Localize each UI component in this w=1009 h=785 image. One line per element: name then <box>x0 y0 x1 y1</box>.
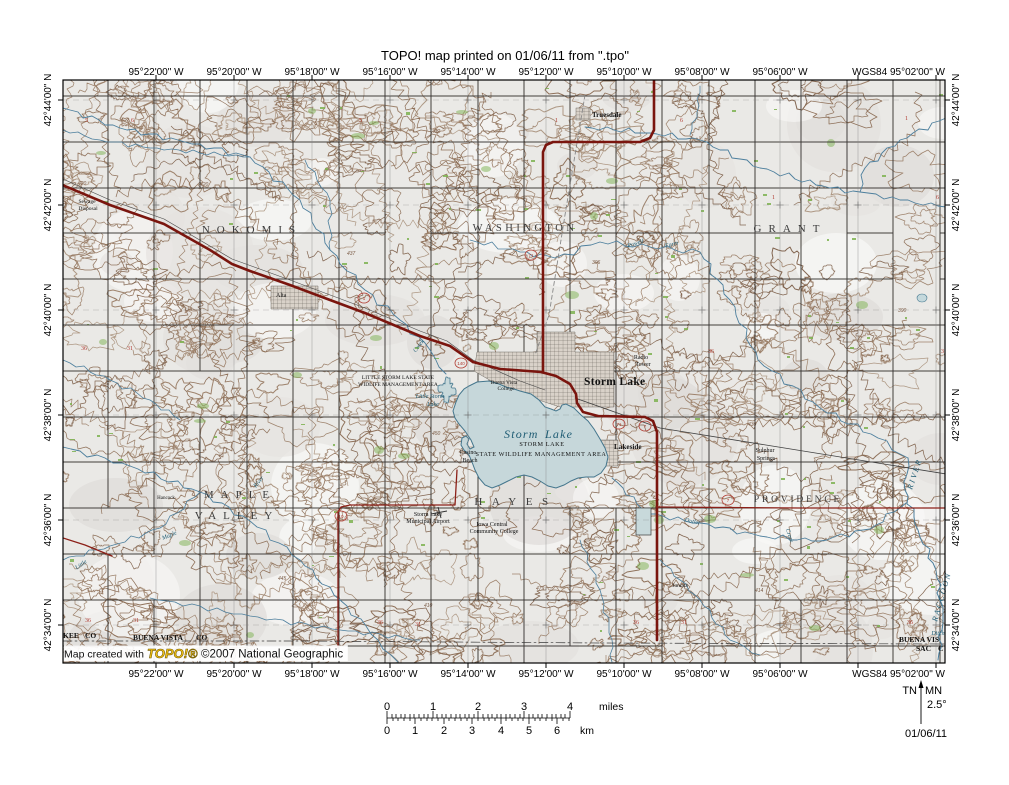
svg-text:1: 1 <box>905 116 908 122</box>
svg-text:Truesdale: Truesdale <box>592 111 621 119</box>
svg-text:Iowa Central: Iowa Central <box>476 522 507 528</box>
svg-text:42°44'00" N: 42°44'00" N <box>951 74 962 127</box>
svg-text:36: 36 <box>377 620 383 626</box>
svg-text:36: 36 <box>85 618 91 624</box>
svg-text:6: 6 <box>680 118 683 124</box>
svg-text:420: 420 <box>200 182 209 188</box>
svg-text:km: km <box>580 725 594 737</box>
svg-text:36: 36 <box>81 346 87 352</box>
svg-text:HAYES: HAYES <box>474 496 557 508</box>
svg-text:Lake: Lake <box>544 427 573 441</box>
svg-text:95°20'00" W: 95°20'00" W <box>206 669 262 680</box>
svg-text:Little Storm: Little Storm <box>415 394 445 400</box>
svg-text:445: 445 <box>278 576 287 582</box>
svg-text:450: 450 <box>226 314 235 320</box>
svg-text:Radio: Radio <box>634 355 648 361</box>
svg-text:95°12'00" W: 95°12'00" W <box>518 669 574 680</box>
svg-text:42°40'00" N: 42°40'00" N <box>951 284 962 337</box>
svg-text:0: 0 <box>384 725 390 737</box>
svg-text:95°14'00" W: 95°14'00" W <box>440 67 496 78</box>
svg-text:95°08'00" W: 95°08'00" W <box>674 67 730 78</box>
svg-text:31: 31 <box>681 620 687 626</box>
svg-text:31: 31 <box>127 346 133 352</box>
svg-text:390: 390 <box>898 308 907 314</box>
svg-text:95°06'00" W: 95°06'00" W <box>752 67 808 78</box>
svg-text:42°42'00" N: 42°42'00" N <box>43 179 54 232</box>
svg-text:479: 479 <box>536 586 545 592</box>
svg-text:42°36'00" N: 42°36'00" N <box>43 494 54 547</box>
svg-text:5: 5 <box>359 118 362 124</box>
svg-text:42°36'00" N: 42°36'00" N <box>951 494 962 547</box>
svg-text:NOKOMIS: NOKOMIS <box>202 224 302 236</box>
svg-text:Ditch: Ditch <box>930 631 944 637</box>
svg-text:STORM LAKE: STORM LAKE <box>519 441 564 448</box>
svg-text:1: 1 <box>772 195 775 201</box>
svg-text:10: 10 <box>338 514 344 519</box>
svg-text:CO: CO <box>196 633 207 642</box>
svg-text:6: 6 <box>936 195 939 201</box>
svg-text:95°16'00" W: 95°16'00" W <box>362 67 418 78</box>
svg-text:430: 430 <box>748 422 757 428</box>
svg-text:Juniata: Juniata <box>672 583 688 589</box>
svg-text:42°42'00" N: 42°42'00" N <box>951 179 962 232</box>
svg-text:450: 450 <box>432 431 441 437</box>
svg-text:WGS84 95°02'00" W: WGS84 95°02'00" W <box>852 669 945 680</box>
svg-text:CO: CO <box>85 631 96 640</box>
svg-text:MAPLE: MAPLE <box>204 489 276 501</box>
svg-text:410: 410 <box>424 603 433 609</box>
svg-text:Springs: Springs <box>757 456 776 462</box>
svg-text:C: C <box>938 644 943 653</box>
svg-text:TOPO!®: TOPO!® <box>147 646 198 661</box>
svg-text:Beach: Beach <box>463 458 478 464</box>
svg-text:140: 140 <box>457 361 465 366</box>
svg-text:2: 2 <box>441 725 447 737</box>
svg-text:95°16'00" W: 95°16'00" W <box>362 669 418 680</box>
svg-text:95°12'00" W: 95°12'00" W <box>518 67 574 78</box>
svg-text:42°34'00" N: 42°34'00" N <box>951 599 962 652</box>
svg-text:437: 437 <box>347 251 356 257</box>
svg-text:31: 31 <box>133 618 139 624</box>
svg-text:95°18'00" W: 95°18'00" W <box>284 669 340 680</box>
svg-text:71: 71 <box>528 253 534 258</box>
svg-text:WGS84 95°02'00" W: WGS84 95°02'00" W <box>852 67 945 78</box>
svg-text:miles: miles <box>599 701 624 713</box>
svg-text:Disposal: Disposal <box>78 206 98 212</box>
svg-text:Tower: Tower <box>635 362 650 368</box>
svg-text:Sulphur: Sulphur <box>755 448 774 454</box>
svg-text:95°08'00" W: 95°08'00" W <box>674 669 730 680</box>
svg-text:WASHINGTON: WASHINGTON <box>473 223 578 234</box>
svg-text:Hancock: Hancock <box>157 496 175 501</box>
svg-text:1: 1 <box>555 118 558 124</box>
svg-text:Alta: Alta <box>276 293 287 299</box>
svg-text:36: 36 <box>633 620 639 626</box>
svg-text:95°22'00" W: 95°22'00" W <box>128 67 184 78</box>
svg-text:420: 420 <box>78 181 87 187</box>
svg-text:BUENA VISTA: BUENA VISTA <box>133 633 184 642</box>
svg-text:42°40'00" N: 42°40'00" N <box>43 284 54 337</box>
svg-text:42°34'00" N: 42°34'00" N <box>43 599 54 652</box>
svg-text:95°06'00" W: 95°06'00" W <box>752 669 808 680</box>
svg-text:36: 36 <box>907 620 913 626</box>
svg-text:LITTLE STORM LAKE STATE: LITTLE STORM LAKE STATE <box>362 375 435 381</box>
svg-text:TN: TN <box>902 685 917 697</box>
svg-text:Lake: Lake <box>426 402 439 408</box>
svg-text:Sewage: Sewage <box>78 199 96 205</box>
svg-text:42°38'00" N: 42°38'00" N <box>43 389 54 442</box>
svg-text:Storm Lake: Storm Lake <box>584 376 645 388</box>
svg-text:GRANT: GRANT <box>754 223 827 235</box>
svg-text:6: 6 <box>554 725 560 737</box>
svg-text:Community College: Community College <box>470 529 519 535</box>
svg-text:95°20'00" W: 95°20'00" W <box>206 67 262 78</box>
svg-text:396: 396 <box>592 260 601 266</box>
svg-text:Storm Lake: Storm Lake <box>414 512 442 518</box>
svg-text:42°44'00" N: 42°44'00" N <box>43 74 54 127</box>
svg-text:95°18'00" W: 95°18'00" W <box>284 67 340 78</box>
svg-text:5: 5 <box>85 118 88 124</box>
svg-text:449: 449 <box>663 364 672 370</box>
svg-text:3: 3 <box>469 725 475 737</box>
svg-text:4: 4 <box>498 725 504 737</box>
svg-text:31: 31 <box>415 622 421 628</box>
svg-text:Municipal Airport: Municipal Airport <box>406 519 450 525</box>
svg-text:College: College <box>497 386 515 392</box>
svg-text:WIDLIFE MANAGEMENT AREA: WIDLIFE MANAGEMENT AREA <box>358 382 438 388</box>
svg-text:STATE WILDLIFE MANAGEMENT AREA: STATE WILDLIFE MANAGEMENT AREA <box>476 451 607 458</box>
svg-text:PROVIDENCE: PROVIDENCE <box>754 495 842 505</box>
svg-text:414: 414 <box>755 588 764 594</box>
svg-text:01/06/11: 01/06/11 <box>905 728 947 740</box>
svg-text:KEE: KEE <box>63 631 79 640</box>
svg-text:95°10'00" W: 95°10'00" W <box>596 669 652 680</box>
svg-text:TOPO! map printed on 01/06/11: TOPO! map printed on 01/06/11 from ".tpo… <box>381 48 629 63</box>
svg-text:MN: MN <box>925 685 942 697</box>
svg-text:SAC: SAC <box>916 644 931 653</box>
svg-text:95°22'00" W: 95°22'00" W <box>128 669 184 680</box>
svg-text:VALLEY: VALLEY <box>195 510 280 522</box>
svg-text:1: 1 <box>412 725 418 737</box>
svg-text:Map created with: Map created with <box>64 649 144 661</box>
svg-text:95°14'00" W: 95°14'00" W <box>440 669 496 680</box>
svg-text:6: 6 <box>131 118 134 124</box>
svg-text:5: 5 <box>526 725 532 737</box>
svg-text:Casino: Casino <box>460 450 477 456</box>
svg-text:Lakeside: Lakeside <box>614 443 642 451</box>
svg-text:71: 71 <box>616 422 622 427</box>
svg-text:Storm: Storm <box>504 427 539 441</box>
svg-text:36: 36 <box>708 349 714 355</box>
svg-text:95°10'00" W: 95°10'00" W <box>596 67 652 78</box>
svg-text:©2007 National Geographic: ©2007 National Geographic <box>201 649 343 661</box>
svg-text:42°38'00" N: 42°38'00" N <box>951 389 962 442</box>
svg-text:2.5°: 2.5° <box>927 699 947 711</box>
svg-text:432: 432 <box>432 129 441 135</box>
